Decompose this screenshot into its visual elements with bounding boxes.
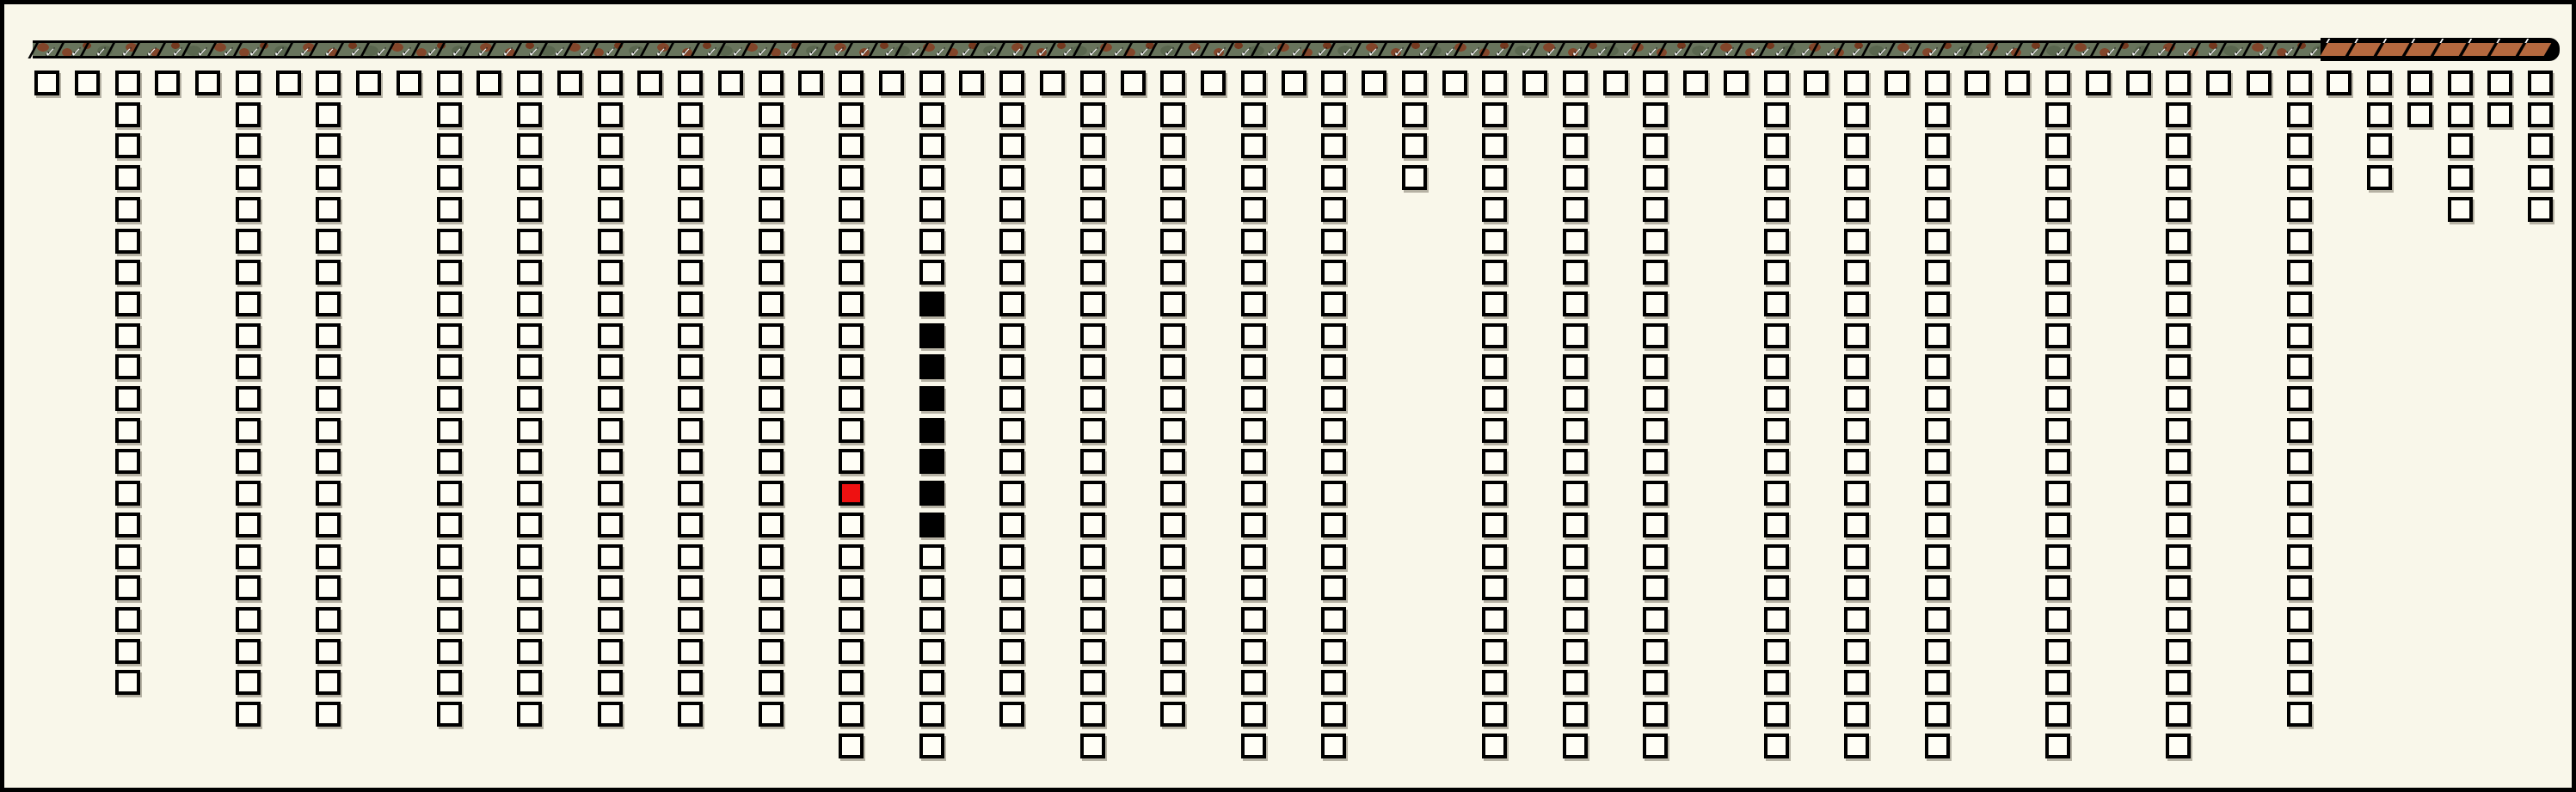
grid-square[interactable] [1241, 639, 1266, 664]
grid-square[interactable] [879, 71, 904, 95]
grid-square[interactable] [1241, 165, 1266, 190]
grid-square[interactable] [678, 702, 703, 727]
grid-square-black[interactable] [919, 292, 944, 316]
grid-square[interactable] [1402, 71, 1427, 95]
grid-square[interactable] [517, 71, 542, 95]
grid-square[interactable] [1321, 292, 1346, 316]
grid-square[interactable] [2448, 133, 2473, 158]
grid-square[interactable] [437, 670, 462, 695]
grid-square[interactable] [1925, 575, 1950, 600]
grid-square[interactable] [1764, 260, 1789, 285]
grid-square[interactable] [2045, 133, 2070, 158]
grid-square[interactable] [1563, 197, 1588, 222]
grid-square[interactable] [2166, 734, 2191, 758]
grid-square[interactable] [1482, 197, 1507, 222]
grid-square[interactable] [1321, 639, 1346, 664]
grid-square[interactable] [1925, 670, 1950, 695]
grid-square[interactable] [1241, 513, 1266, 537]
grid-square[interactable] [839, 133, 864, 158]
grid-square[interactable] [2166, 702, 2191, 727]
grid-square[interactable] [316, 323, 341, 348]
grid-square[interactable] [1643, 449, 1668, 474]
grid-square[interactable] [517, 639, 542, 664]
grid-square[interactable] [2045, 386, 2070, 411]
grid-square[interactable] [1160, 639, 1185, 664]
grid-square[interactable] [1844, 418, 1869, 443]
grid-square[interactable] [598, 323, 623, 348]
grid-square[interactable] [1764, 670, 1789, 695]
grid-square[interactable] [2287, 133, 2312, 158]
grid-square[interactable] [1241, 354, 1266, 379]
grid-square[interactable] [1482, 260, 1507, 285]
grid-square[interactable] [1844, 639, 1869, 664]
grid-square[interactable] [1563, 544, 1588, 569]
grid-square[interactable] [678, 292, 703, 316]
grid-square[interactable] [1563, 734, 1588, 758]
grid-square[interactable] [1925, 544, 1950, 569]
grid-square[interactable] [1282, 71, 1306, 95]
grid-square[interactable] [316, 197, 341, 222]
grid-square[interactable] [1563, 260, 1588, 285]
grid-square[interactable] [1160, 607, 1185, 632]
grid-square[interactable] [598, 386, 623, 411]
grid-square-black[interactable] [919, 513, 944, 537]
grid-square[interactable] [1080, 386, 1105, 411]
grid-square[interactable] [236, 197, 261, 222]
grid-square[interactable] [1844, 607, 1869, 632]
grid-square[interactable] [316, 165, 341, 190]
grid-square[interactable] [1321, 229, 1346, 254]
grid-square[interactable] [2166, 449, 2191, 474]
grid-square[interactable] [1080, 734, 1105, 758]
grid-square[interactable] [517, 260, 542, 285]
grid-square[interactable] [115, 197, 140, 222]
grid-square-black[interactable] [919, 481, 944, 506]
grid-square[interactable] [678, 607, 703, 632]
grid-square[interactable] [598, 133, 623, 158]
grid-square[interactable] [1764, 607, 1789, 632]
grid-square[interactable] [1160, 133, 1185, 158]
grid-square[interactable] [2045, 513, 2070, 537]
grid-square[interactable] [236, 133, 261, 158]
grid-square[interactable] [115, 133, 140, 158]
grid-square[interactable] [1402, 165, 1427, 190]
grid-square[interactable] [678, 260, 703, 285]
grid-square[interactable] [1643, 734, 1668, 758]
grid-square[interactable] [75, 71, 100, 95]
grid-square[interactable] [476, 71, 501, 95]
grid-square[interactable] [1563, 354, 1588, 379]
grid-square[interactable] [999, 197, 1024, 222]
grid-square[interactable] [2166, 292, 2191, 316]
grid-square[interactable] [1643, 197, 1668, 222]
grid-square[interactable] [678, 229, 703, 254]
grid-square[interactable] [1925, 513, 1950, 537]
grid-square[interactable] [1563, 292, 1588, 316]
grid-square[interactable] [1321, 133, 1346, 158]
grid-square[interactable] [115, 102, 140, 127]
grid-square[interactable] [999, 449, 1024, 474]
grid-square[interactable] [517, 229, 542, 254]
grid-square[interactable] [1080, 102, 1105, 127]
grid-square[interactable] [1764, 102, 1789, 127]
grid-square[interactable] [999, 292, 1024, 316]
grid-square[interactable] [678, 544, 703, 569]
grid-square[interactable] [1482, 418, 1507, 443]
grid-square[interactable] [1844, 102, 1869, 127]
grid-square[interactable] [1482, 513, 1507, 537]
grid-square[interactable] [517, 165, 542, 190]
grid-square[interactable] [2327, 71, 2352, 95]
grid-square[interactable] [1925, 260, 1950, 285]
grid-square[interactable] [1321, 260, 1346, 285]
grid-square[interactable] [1643, 481, 1668, 506]
grid-square[interactable] [1764, 702, 1789, 727]
grid-square[interactable] [2287, 229, 2312, 254]
grid-square[interactable] [2045, 639, 2070, 664]
grid-square[interactable] [2287, 639, 2312, 664]
grid-square[interactable] [999, 165, 1024, 190]
grid-square[interactable] [759, 607, 784, 632]
grid-square[interactable] [437, 607, 462, 632]
grid-square[interactable] [678, 481, 703, 506]
grid-square[interactable] [959, 71, 984, 95]
grid-square[interactable] [1321, 71, 1346, 95]
grid-square[interactable] [437, 165, 462, 190]
grid-square-black[interactable] [919, 449, 944, 474]
grid-square[interactable] [1764, 418, 1789, 443]
grid-square[interactable] [2045, 418, 2070, 443]
grid-square[interactable] [316, 670, 341, 695]
grid-square[interactable] [759, 133, 784, 158]
grid-square[interactable] [1241, 102, 1266, 127]
grid-square[interactable] [598, 71, 623, 95]
grid-square[interactable] [759, 102, 784, 127]
grid-square[interactable] [839, 513, 864, 537]
grid-square[interactable] [1643, 323, 1668, 348]
grid-square[interactable] [1643, 575, 1668, 600]
grid-square[interactable] [1844, 386, 1869, 411]
grid-square[interactable] [115, 575, 140, 600]
grid-square[interactable] [1241, 544, 1266, 569]
grid-square[interactable] [517, 481, 542, 506]
grid-square[interactable] [316, 71, 341, 95]
grid-square[interactable] [1402, 133, 1427, 158]
grid-square[interactable] [236, 229, 261, 254]
grid-square[interactable] [839, 418, 864, 443]
grid-square[interactable] [1160, 544, 1185, 569]
grid-square[interactable] [115, 386, 140, 411]
grid-square[interactable] [1764, 354, 1789, 379]
grid-square[interactable] [1241, 670, 1266, 695]
grid-square[interactable] [1643, 71, 1668, 95]
grid-square[interactable] [999, 702, 1024, 727]
grid-square[interactable] [2166, 386, 2191, 411]
grid-square[interactable] [678, 449, 703, 474]
grid-square[interactable] [919, 607, 944, 632]
grid-square[interactable] [598, 354, 623, 379]
grid-square-black[interactable] [919, 386, 944, 411]
grid-square[interactable] [2166, 71, 2191, 95]
grid-square[interactable] [1160, 702, 1185, 727]
grid-square[interactable] [517, 292, 542, 316]
grid-square[interactable] [1563, 165, 1588, 190]
grid-square[interactable] [1764, 639, 1789, 664]
grid-square[interactable] [115, 292, 140, 316]
grid-square[interactable] [759, 260, 784, 285]
grid-square[interactable] [1925, 481, 1950, 506]
grid-square[interactable] [1241, 418, 1266, 443]
grid-square[interactable] [919, 229, 944, 254]
grid-square[interactable] [2045, 260, 2070, 285]
grid-square[interactable] [637, 71, 662, 95]
grid-square[interactable] [1643, 607, 1668, 632]
grid-square[interactable] [356, 71, 381, 95]
grid-square[interactable] [1080, 639, 1105, 664]
grid-square[interactable] [1643, 229, 1668, 254]
grid-square[interactable] [2448, 197, 2473, 222]
grid-square[interactable] [2166, 481, 2191, 506]
grid-square[interactable] [598, 670, 623, 695]
grid-square[interactable] [517, 575, 542, 600]
grid-square[interactable] [839, 639, 864, 664]
grid-square[interactable] [598, 513, 623, 537]
grid-square[interactable] [1563, 702, 1588, 727]
grid-square[interactable] [437, 386, 462, 411]
grid-square[interactable] [1201, 71, 1226, 95]
grid-square[interactable] [839, 575, 864, 600]
grid-square[interactable] [2287, 71, 2312, 95]
grid-square[interactable] [1482, 229, 1507, 254]
grid-square[interactable] [1643, 292, 1668, 316]
grid-square[interactable] [1040, 71, 1065, 95]
grid-square[interactable] [2367, 165, 2392, 190]
grid-square[interactable] [1321, 607, 1346, 632]
grid-square[interactable] [2287, 449, 2312, 474]
grid-square[interactable] [2247, 71, 2272, 95]
grid-square[interactable] [2166, 102, 2191, 127]
grid-square[interactable] [316, 102, 341, 127]
grid-square[interactable] [1362, 71, 1386, 95]
grid-square[interactable] [1241, 734, 1266, 758]
grid-square[interactable] [1160, 481, 1185, 506]
grid-square[interactable] [236, 71, 261, 95]
grid-square[interactable] [517, 418, 542, 443]
grid-square[interactable] [115, 607, 140, 632]
grid-square[interactable] [1482, 292, 1507, 316]
grid-square[interactable] [1925, 292, 1950, 316]
grid-square[interactable] [678, 71, 703, 95]
grid-square[interactable] [598, 702, 623, 727]
grid-square[interactable] [759, 71, 784, 95]
grid-square[interactable] [1160, 418, 1185, 443]
grid-square[interactable] [759, 639, 784, 664]
grid-square[interactable] [1321, 544, 1346, 569]
grid-square[interactable] [1563, 418, 1588, 443]
grid-square[interactable] [1925, 418, 1950, 443]
grid-square[interactable] [839, 670, 864, 695]
grid-square[interactable] [1643, 354, 1668, 379]
grid-square[interactable] [2166, 513, 2191, 537]
grid-square[interactable] [919, 165, 944, 190]
grid-square[interactable] [1241, 323, 1266, 348]
grid-square[interactable] [236, 513, 261, 537]
grid-square[interactable] [437, 229, 462, 254]
grid-square[interactable] [1925, 133, 1950, 158]
grid-square[interactable] [999, 71, 1024, 95]
grid-square[interactable] [1080, 260, 1105, 285]
grid-square[interactable] [1241, 575, 1266, 600]
grid-square[interactable] [919, 102, 944, 127]
grid-square[interactable] [1160, 165, 1185, 190]
grid-square[interactable] [2487, 102, 2512, 127]
grid-square[interactable] [2287, 354, 2312, 379]
grid-square[interactable] [316, 354, 341, 379]
grid-square[interactable] [1482, 607, 1507, 632]
grid-square[interactable] [1844, 260, 1869, 285]
grid-square[interactable] [1563, 481, 1588, 506]
grid-square[interactable] [1321, 165, 1346, 190]
grid-square[interactable] [919, 133, 944, 158]
grid-square[interactable] [517, 133, 542, 158]
grid-square[interactable] [839, 386, 864, 411]
grid-square[interactable] [1080, 513, 1105, 537]
grid-square[interactable] [598, 544, 623, 569]
grid-square[interactable] [1643, 165, 1668, 190]
grid-square[interactable] [1121, 71, 1146, 95]
grid-square[interactable] [2166, 260, 2191, 285]
grid-square[interactable] [678, 197, 703, 222]
grid-square[interactable] [678, 513, 703, 537]
grid-square[interactable] [2045, 734, 2070, 758]
grid-square[interactable] [919, 197, 944, 222]
grid-square[interactable] [1643, 544, 1668, 569]
grid-square[interactable] [437, 575, 462, 600]
grid-square[interactable] [1482, 734, 1507, 758]
grid-square[interactable] [1160, 575, 1185, 600]
grid-square[interactable] [1563, 229, 1588, 254]
grid-square[interactable] [1884, 71, 1909, 95]
grid-square[interactable] [1804, 71, 1829, 95]
grid-square[interactable] [1844, 734, 1869, 758]
grid-square[interactable] [1925, 734, 1950, 758]
grid-square[interactable] [2528, 71, 2553, 95]
grid-square[interactable] [839, 734, 864, 758]
grid-square[interactable] [2528, 197, 2553, 222]
grid-square[interactable] [1080, 354, 1105, 379]
grid-square[interactable] [316, 133, 341, 158]
grid-square[interactable] [2287, 481, 2312, 506]
grid-square[interactable] [1925, 702, 1950, 727]
grid-square[interactable] [598, 102, 623, 127]
grid-square[interactable] [437, 702, 462, 727]
grid-square[interactable] [1844, 292, 1869, 316]
grid-square[interactable] [2448, 102, 2473, 127]
grid-square[interactable] [1080, 670, 1105, 695]
grid-square[interactable] [1925, 197, 1950, 222]
grid-square[interactable] [759, 481, 784, 506]
grid-square[interactable] [236, 354, 261, 379]
grid-square[interactable] [1160, 449, 1185, 474]
grid-square[interactable] [437, 354, 462, 379]
grid-square[interactable] [1241, 481, 1266, 506]
grid-square[interactable] [1643, 260, 1668, 285]
grid-square[interactable] [115, 513, 140, 537]
grid-square[interactable] [236, 418, 261, 443]
grid-square[interactable] [1724, 71, 1749, 95]
grid-square[interactable] [839, 260, 864, 285]
grid-square[interactable] [1482, 544, 1507, 569]
grid-square[interactable] [2287, 197, 2312, 222]
grid-square[interactable] [1080, 197, 1105, 222]
grid-square[interactable] [1160, 102, 1185, 127]
grid-square[interactable] [1482, 323, 1507, 348]
grid-square[interactable] [798, 71, 823, 95]
grid-square[interactable] [1643, 418, 1668, 443]
grid-square[interactable] [1241, 260, 1266, 285]
grid-square[interactable] [236, 544, 261, 569]
grid-square[interactable] [517, 702, 542, 727]
grid-square[interactable] [2166, 575, 2191, 600]
grid-square[interactable] [1643, 513, 1668, 537]
grid-square[interactable] [1080, 292, 1105, 316]
grid-square[interactable] [1844, 71, 1869, 95]
grid-square[interactable] [2287, 544, 2312, 569]
grid-square[interactable] [1563, 513, 1588, 537]
grid-square[interactable] [919, 702, 944, 727]
grid-square[interactable] [1080, 71, 1105, 95]
grid-square[interactable] [2287, 260, 2312, 285]
grid-square[interactable] [2045, 71, 2070, 95]
grid-square[interactable] [2287, 292, 2312, 316]
grid-square[interactable] [437, 544, 462, 569]
grid-square[interactable] [2287, 670, 2312, 695]
grid-square[interactable] [437, 513, 462, 537]
grid-square[interactable] [1241, 607, 1266, 632]
grid-square[interactable] [316, 229, 341, 254]
grid-square[interactable] [1241, 71, 1266, 95]
grid-square[interactable] [759, 165, 784, 190]
grid-square[interactable] [2166, 323, 2191, 348]
grid-square[interactable] [598, 418, 623, 443]
grid-square[interactable] [1482, 639, 1507, 664]
grid-square[interactable] [678, 670, 703, 695]
grid-square[interactable] [517, 449, 542, 474]
grid-square[interactable] [1643, 102, 1668, 127]
grid-square[interactable] [999, 418, 1024, 443]
grid-square[interactable] [1482, 481, 1507, 506]
grid-square[interactable] [2407, 102, 2432, 127]
grid-square[interactable] [1160, 323, 1185, 348]
grid-square[interactable] [1321, 513, 1346, 537]
grid-square[interactable] [1321, 449, 1346, 474]
grid-square[interactable] [2287, 575, 2312, 600]
grid-square[interactable] [2487, 71, 2512, 95]
grid-square[interactable] [2005, 71, 2030, 95]
grid-square[interactable] [1321, 386, 1346, 411]
grid-square[interactable] [1844, 229, 1869, 254]
grid-square[interactable] [2287, 702, 2312, 727]
grid-square[interactable] [999, 513, 1024, 537]
grid-square[interactable] [1442, 71, 1467, 95]
grid-square[interactable] [2287, 418, 2312, 443]
grid-square[interactable] [999, 133, 1024, 158]
grid-square[interactable] [678, 323, 703, 348]
grid-square[interactable] [2045, 229, 2070, 254]
grid-square[interactable] [2045, 575, 2070, 600]
grid-square[interactable] [1080, 575, 1105, 600]
grid-square[interactable] [1563, 102, 1588, 127]
